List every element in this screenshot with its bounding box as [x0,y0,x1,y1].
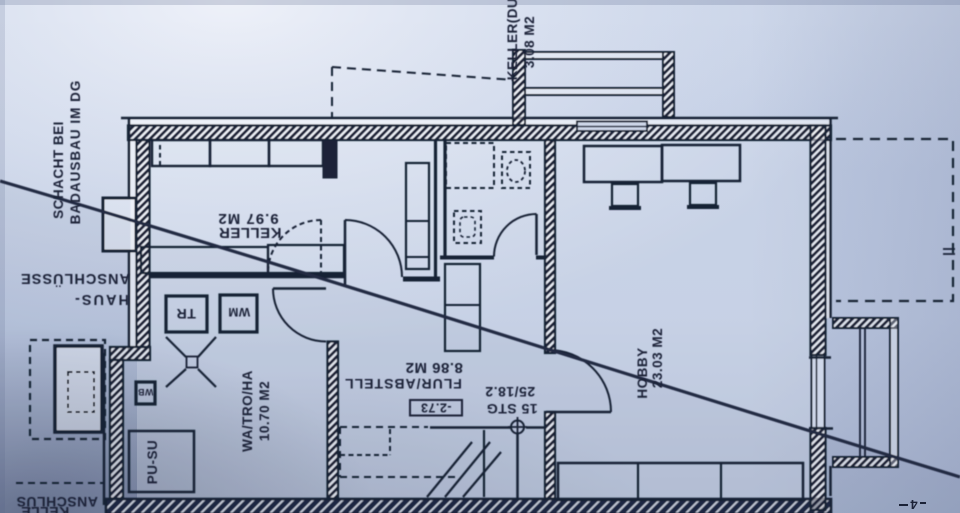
svg-text:-2.73: -2.73 [421,401,452,415]
svg-text:FLUR/ABSTELL: FLUR/ABSTELL [344,376,462,392]
svg-text:ANSCHLÜSSE: ANSCHLÜSSE [20,270,130,287]
svg-text:PU-SU: PU-SU [145,440,160,485]
svg-text:WB: WB [138,387,154,397]
svg-text:BADAUSBAU IM DG: BADAUSBAU IM DG [68,80,83,225]
svg-text:4: 4 [910,497,918,512]
svg-text:TR: TR [176,306,196,322]
svg-text:25/18.2: 25/18.2 [485,384,535,400]
svg-text:HOBBY: HOBBY [635,347,650,398]
svg-text:23.03 M2: 23.03 M2 [650,328,665,388]
svg-text:KELLER: KELLER [219,224,282,241]
svg-text:WA/TRO/HA: WA/TRO/HA [240,370,255,452]
svg-text:SCHACHT BEI: SCHACHT BEI [51,121,66,219]
svg-text:15 STG: 15 STG [486,401,537,417]
svg-text:8.86 M2: 8.86 M2 [405,359,463,376]
svg-text:HAUS-: HAUS- [73,291,129,307]
svg-text:KELLE: KELLE [21,504,69,513]
svg-text:KELLER(DU: KELLER(DU [505,0,520,80]
svg-text:10.70 M2: 10.70 M2 [257,381,272,441]
svg-text:WM: WM [228,305,250,319]
svg-text:3.08 M2: 3.08 M2 [522,16,537,68]
